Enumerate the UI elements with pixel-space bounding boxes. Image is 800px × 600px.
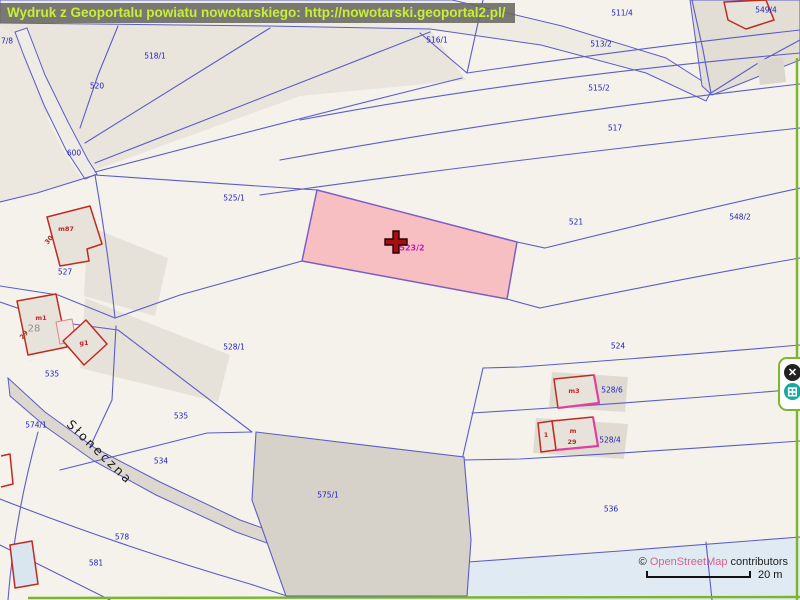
building-footprint-gray (757, 57, 786, 85)
copyright-symbol: © (639, 556, 650, 568)
location-marker (383, 230, 409, 256)
map-container[interactable]: 7/8518/1520600516/1511/4513/2549/4515/25… (0, 0, 800, 600)
scale-bar (646, 571, 751, 578)
map-canvas (0, 0, 800, 600)
cross-icon (383, 230, 409, 256)
building-m29-annex (538, 421, 556, 452)
scale-bar-label: 20 m (758, 569, 782, 581)
side-panel[interactable]: ✕ ⊞ (778, 357, 800, 411)
overview-map-icon[interactable]: ⊞ (784, 383, 800, 400)
page-title: Wydruk z Geoportalu powiatu nowotarskieg… (7, 5, 506, 20)
close-icon[interactable]: ✕ (784, 364, 800, 381)
title-bar: Wydruk z Geoportalu powiatu nowotarskieg… (0, 3, 515, 23)
building-m29 (552, 417, 598, 450)
osm-link[interactable]: OpenStreetMap (650, 556, 728, 568)
attribution: © OpenStreetMap contributors (639, 556, 788, 568)
parcel-575-1-area (252, 432, 471, 596)
contributors-text: contributors (727, 556, 788, 568)
